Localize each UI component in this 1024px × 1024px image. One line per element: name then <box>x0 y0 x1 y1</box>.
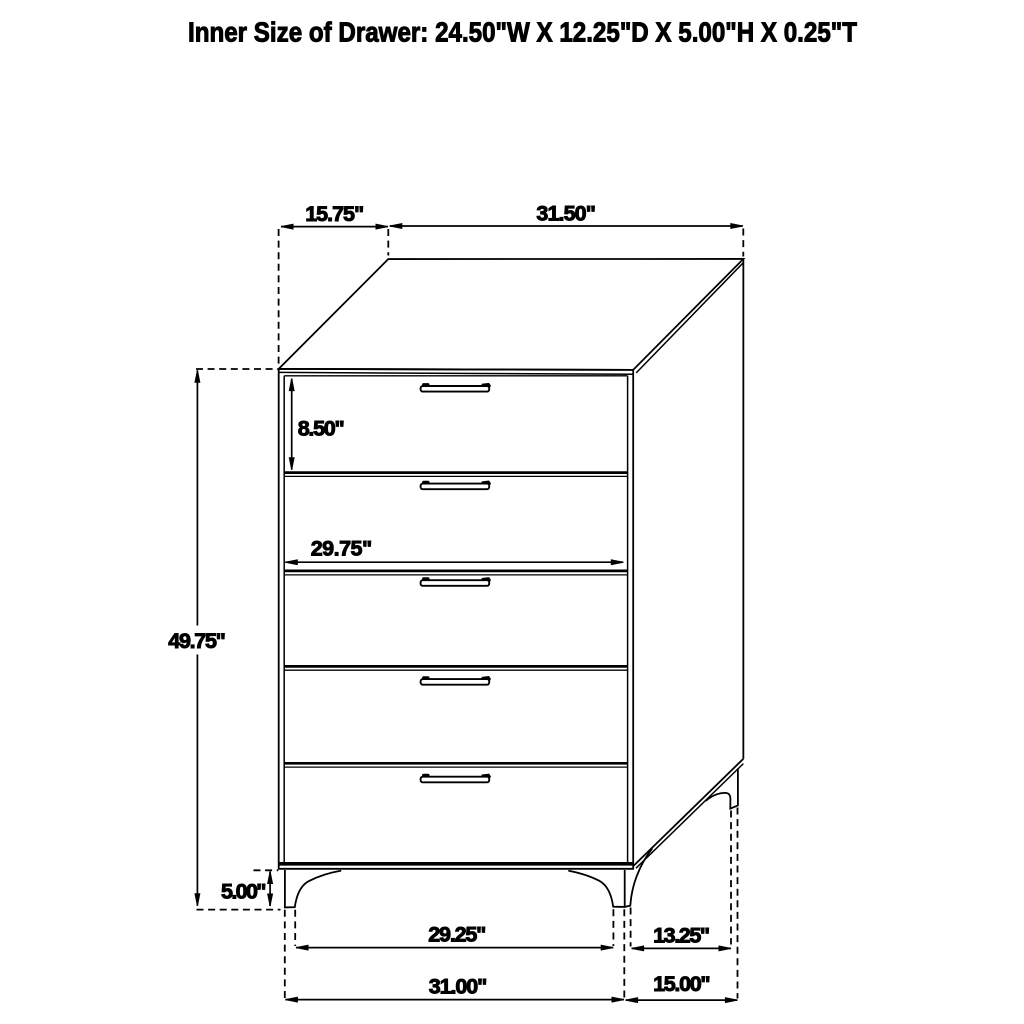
svg-text:Inner Size of Drawer: 24.50"W: Inner Size of Drawer: 24.50"W X 12.25"D … <box>188 16 857 47</box>
svg-text:13.25": 13.25" <box>653 923 710 947</box>
svg-text:31.00": 31.00" <box>429 974 488 998</box>
svg-text:31.50": 31.50" <box>536 201 596 225</box>
svg-text:15.75": 15.75" <box>305 202 364 226</box>
svg-text:15.00": 15.00" <box>653 972 711 996</box>
svg-text:8.50": 8.50" <box>298 416 345 440</box>
svg-text:5.00": 5.00" <box>221 879 267 903</box>
svg-text:29.25": 29.25" <box>428 922 486 946</box>
svg-text:29.75": 29.75" <box>311 537 373 561</box>
svg-text:49.75": 49.75" <box>168 629 226 653</box>
